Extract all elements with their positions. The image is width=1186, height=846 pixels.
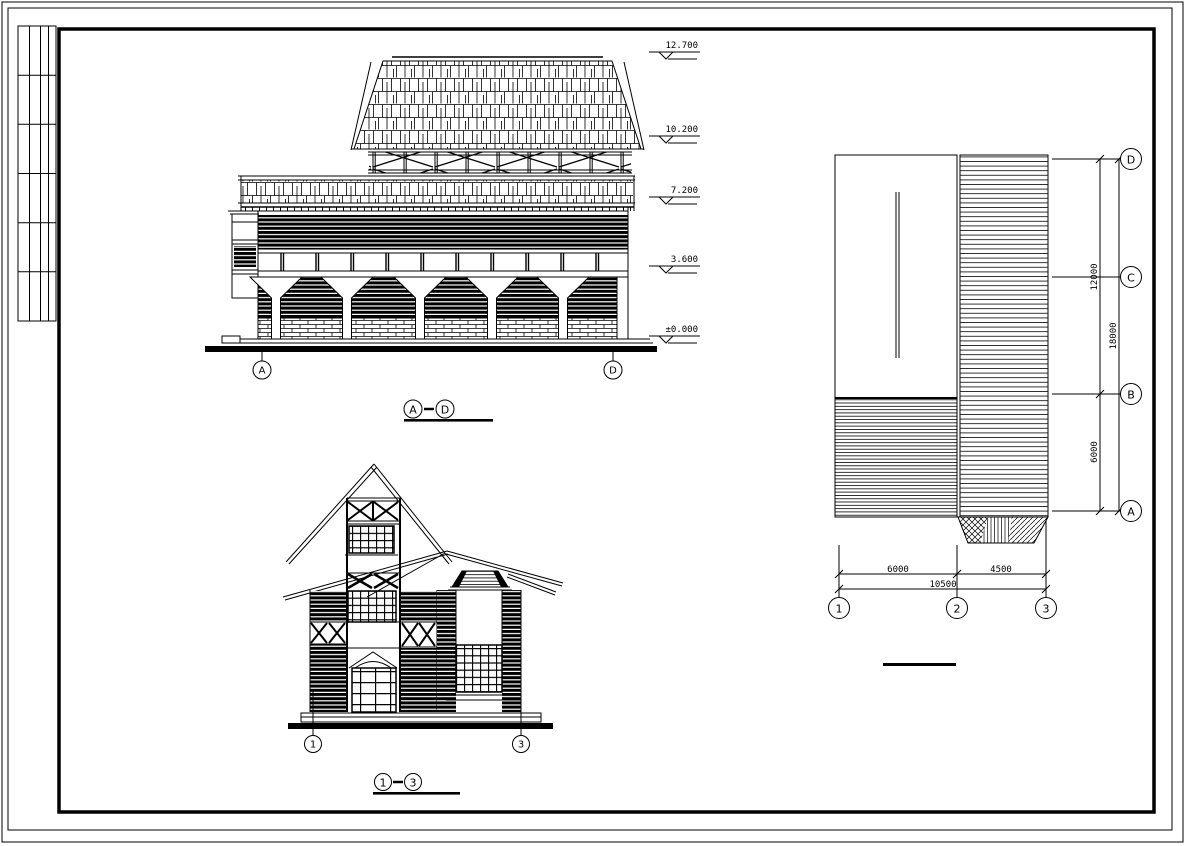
siding xyxy=(310,644,346,712)
left-bay xyxy=(228,211,261,298)
porch-diagonal-hatch xyxy=(1008,517,1048,543)
grid-bubble-label: 2 xyxy=(954,603,961,616)
ground-bar xyxy=(288,723,553,729)
gable-interior xyxy=(345,498,400,556)
title-13: 1 3 xyxy=(373,774,460,795)
dimension-value: 6000 xyxy=(1090,441,1100,463)
level-marker-symbol xyxy=(649,197,700,204)
siding xyxy=(401,591,437,622)
roof-plan: 12000 6000 18000 D C B A 6000 4500 10500… xyxy=(829,149,1142,667)
x-braces xyxy=(402,623,435,646)
level-marker: 7.200 xyxy=(649,186,700,204)
ground-13 xyxy=(288,713,553,729)
level-label: 12.700 xyxy=(665,41,698,51)
level-marker-symbol xyxy=(649,52,700,59)
grid-bubble-label: A xyxy=(259,366,266,377)
clerestory-mullions xyxy=(260,253,628,271)
dimension-total: 18000 xyxy=(1109,322,1119,349)
level-label: 10.200 xyxy=(665,125,698,135)
grid-bubble-label: C xyxy=(1127,272,1135,285)
house-tower xyxy=(437,571,556,712)
level-marker: 12.700 xyxy=(649,41,700,59)
title-letter: A xyxy=(409,404,417,417)
beam-lines xyxy=(258,271,628,277)
grid-bubble-label: 1 xyxy=(310,740,316,751)
roofplan-row-dimensions: 12000 6000 18000 D C B A xyxy=(1052,149,1142,522)
elevation-ad: A D A D xyxy=(205,57,657,422)
grid-bubble-label: 1 xyxy=(836,603,843,616)
tower-panel xyxy=(456,590,502,645)
tower-siding xyxy=(502,590,521,712)
grid-bubble-label: 3 xyxy=(518,740,524,751)
grid-bubble-label: A xyxy=(1127,506,1135,519)
grid-bubble-label: B xyxy=(1127,389,1135,402)
bubble-leaders xyxy=(262,352,613,361)
level-label: 7.200 xyxy=(671,186,698,196)
center-window xyxy=(348,591,396,622)
title-block-gridlines xyxy=(18,26,56,321)
house-left-body xyxy=(310,590,346,712)
title-number: 1 xyxy=(380,777,387,790)
center-x-braces xyxy=(348,574,398,588)
title-underline xyxy=(373,792,460,795)
level-marker-symbol xyxy=(649,266,700,273)
drawing-canvas: A D A D 12.700 10.200 7.200 3.600 xyxy=(0,0,1186,846)
door-pediment xyxy=(349,652,397,668)
siding xyxy=(401,648,437,712)
level-marker-symbol xyxy=(649,336,700,343)
upper-roof xyxy=(351,57,644,150)
roofplan-title-underline xyxy=(883,663,956,666)
title-block-table xyxy=(18,26,56,321)
center-band-lines xyxy=(346,622,400,648)
level-label: 3.600 xyxy=(671,255,698,265)
x-band-frame xyxy=(401,622,437,647)
dimension-value: 6000 xyxy=(887,565,909,575)
tower-siding xyxy=(437,590,456,712)
grid-bubble-label: D xyxy=(609,366,617,377)
level-marker: 10.200 xyxy=(649,125,700,143)
right-pilaster xyxy=(617,277,628,339)
roof-left-hatched xyxy=(835,398,957,517)
roof-right-panel xyxy=(960,155,1048,517)
level-label: ±0.000 xyxy=(665,325,698,335)
title-number: 3 xyxy=(410,777,417,790)
dimension-value: 4500 xyxy=(990,565,1012,575)
platform-lines xyxy=(230,339,653,343)
grid-bubbles-ad: A D xyxy=(253,352,622,379)
dimension-total: 10500 xyxy=(929,580,956,590)
brick-band xyxy=(258,318,628,339)
house-rightmid-body xyxy=(401,590,437,712)
house-center-body xyxy=(346,590,400,712)
lower-roof xyxy=(238,176,635,211)
level-markers: 12.700 10.200 7.200 3.600 ±0.000 xyxy=(649,41,700,343)
bay-dark-panel xyxy=(234,246,256,267)
mid-center-band xyxy=(347,556,400,590)
level-marker: ±0.000 xyxy=(649,325,700,343)
dimension-value: 12000 xyxy=(1090,263,1100,290)
truss-band xyxy=(368,152,632,173)
title-letter: D xyxy=(441,404,449,417)
grid-bubble-label: D xyxy=(1127,154,1135,167)
grid-bubble-label: 3 xyxy=(1043,603,1050,616)
upper-roof-shingles xyxy=(354,61,641,149)
title-ad: A D xyxy=(404,400,493,422)
title-underline xyxy=(404,419,493,422)
upper-dark-band xyxy=(258,215,628,249)
level-marker-symbol xyxy=(649,136,700,143)
porch-roof xyxy=(958,517,1048,543)
cad-sheet: A D A D 12.700 10.200 7.200 3.600 xyxy=(0,0,1186,846)
main-wall xyxy=(250,207,628,339)
tower-window xyxy=(456,645,502,692)
siding xyxy=(310,591,346,622)
ground-bar xyxy=(205,346,657,352)
left-step xyxy=(222,336,240,343)
gable-window xyxy=(349,526,394,553)
x-braces xyxy=(311,623,345,643)
level-marker: 3.600 xyxy=(649,255,700,273)
rafter-tails xyxy=(243,207,632,211)
lower-roof-shingles xyxy=(241,180,633,203)
entry-door xyxy=(352,668,396,712)
x-band-frame xyxy=(310,622,346,644)
elevation-13: 1 3 1 3 xyxy=(283,464,563,795)
